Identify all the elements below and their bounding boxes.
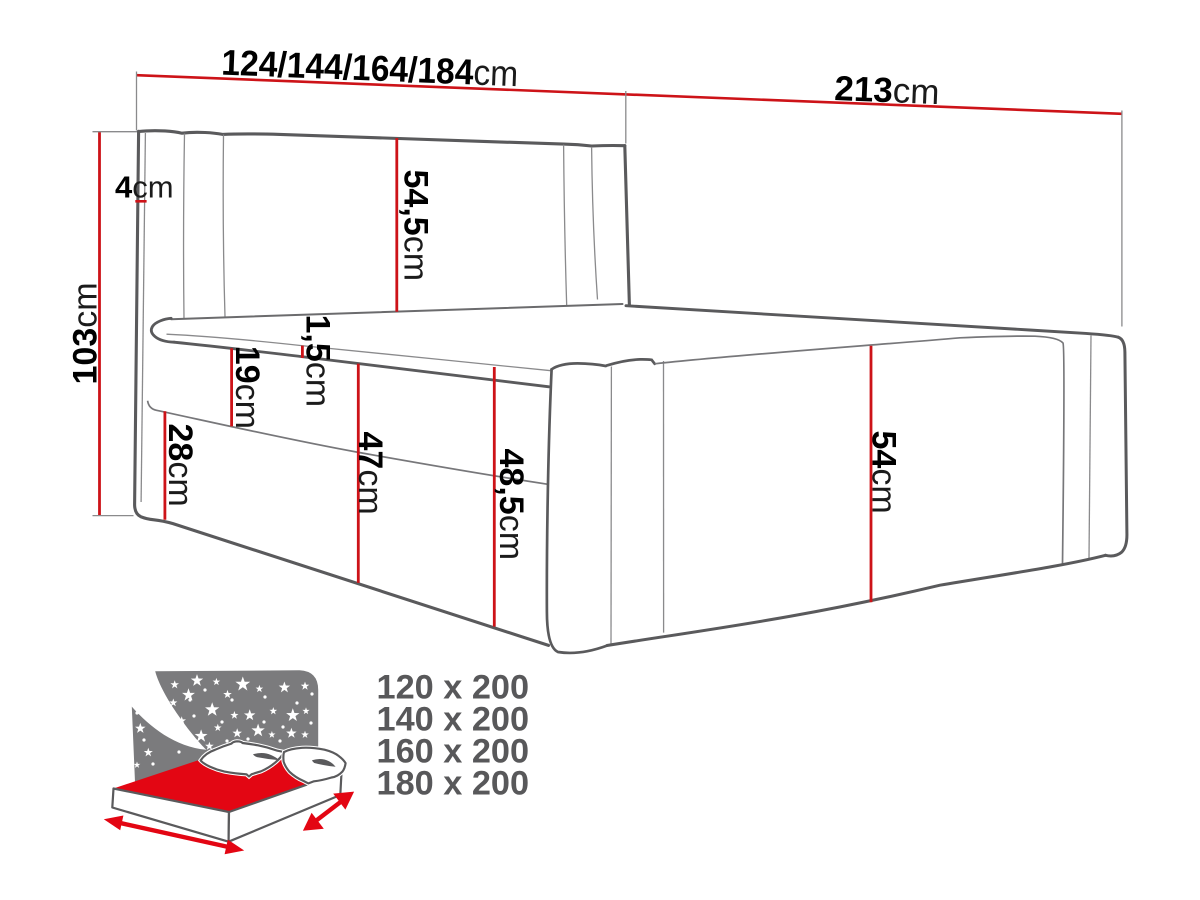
svg-text:1,5cm: 1,5cm (299, 315, 337, 408)
svg-text:28cm: 28cm (161, 424, 199, 507)
svg-text:19cm: 19cm (228, 346, 266, 429)
svg-text:124/144/164/184cm: 124/144/164/184cm (221, 42, 519, 95)
svg-text:213cm: 213cm (834, 69, 941, 112)
svg-text:4cm: 4cm (115, 169, 174, 204)
svg-text:54,5cm: 54,5cm (397, 170, 435, 282)
svg-text:180 x 200: 180 x 200 (377, 765, 530, 803)
svg-text:54cm: 54cm (865, 431, 903, 514)
svg-text:48,5cm: 48,5cm (492, 449, 530, 561)
svg-text:103cm: 103cm (67, 282, 105, 384)
svg-text:47cm: 47cm (351, 432, 389, 515)
